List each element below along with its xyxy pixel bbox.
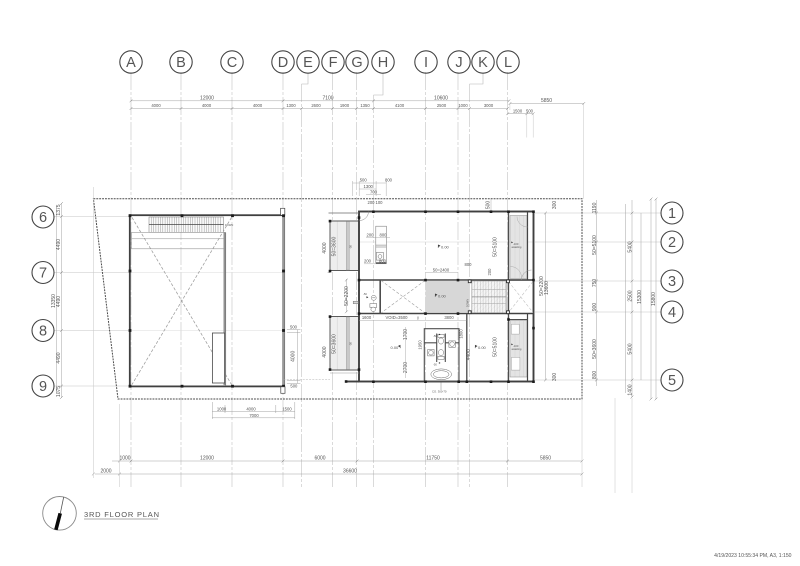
svg-text:50=3600: 50=3600 — [332, 236, 338, 256]
svg-text:200: 200 — [368, 200, 376, 205]
svg-text:-50: -50 — [349, 245, 353, 249]
svg-text:5400: 5400 — [628, 343, 634, 354]
svg-text:50=5100: 50=5100 — [493, 237, 499, 257]
svg-text:4/19/2023 10:55:34 PM, A3, 1:1: 4/19/2023 10:55:34 PM, A3, 1:150 — [714, 553, 791, 559]
svg-text:4490: 4490 — [56, 239, 62, 250]
svg-text:1900: 1900 — [340, 103, 350, 108]
svg-text:800: 800 — [385, 178, 393, 183]
svg-text:7000: 7000 — [249, 413, 259, 418]
svg-text:800: 800 — [380, 232, 388, 237]
svg-text:5400: 5400 — [628, 241, 634, 252]
svg-text:5: 5 — [668, 373, 676, 389]
svg-text:500: 500 — [290, 325, 298, 330]
svg-text:C: C — [227, 55, 237, 71]
svg-text:J: J — [455, 55, 462, 71]
svg-text:50=3600: 50=3600 — [332, 334, 338, 354]
svg-text:5850: 5850 — [541, 98, 552, 104]
svg-text:4490: 4490 — [56, 352, 62, 363]
svg-text:200: 200 — [364, 258, 372, 263]
svg-text:H: H — [378, 55, 388, 71]
svg-text:36600: 36600 — [343, 469, 357, 475]
svg-text:3000: 3000 — [484, 103, 494, 108]
svg-text:0.00: 0.00 — [478, 345, 487, 350]
svg-text:10600: 10600 — [434, 95, 448, 101]
svg-text:6: 6 — [39, 210, 47, 226]
svg-text:A: A — [126, 55, 136, 71]
svg-text:2000: 2000 — [100, 469, 111, 475]
svg-text:4: 4 — [668, 305, 676, 321]
svg-text:1600: 1600 — [362, 315, 372, 320]
svg-text:4000: 4000 — [202, 103, 212, 108]
svg-text:L: L — [504, 55, 512, 71]
svg-text:7: 7 — [39, 266, 47, 282]
svg-text:800: 800 — [465, 262, 473, 267]
svg-text:2500: 2500 — [437, 103, 447, 108]
svg-text:awaiting: awaiting — [512, 347, 522, 351]
svg-text:4000: 4000 — [291, 351, 297, 362]
svg-text:11750: 11750 — [426, 456, 440, 462]
svg-text:1: 1 — [668, 206, 676, 222]
svg-text:1700: 1700 — [403, 329, 409, 340]
svg-text:4000: 4000 — [246, 406, 256, 411]
svg-text:0.00: 0.00 — [438, 294, 447, 299]
svg-text:15800: 15800 — [651, 292, 657, 306]
svg-text:1950: 1950 — [418, 340, 423, 350]
svg-text:1000: 1000 — [217, 406, 227, 411]
svg-text:D: D — [278, 55, 288, 71]
svg-text:4000: 4000 — [322, 346, 328, 357]
svg-text:300: 300 — [552, 373, 558, 382]
svg-text:1375: 1375 — [56, 204, 62, 215]
svg-text:500: 500 — [486, 201, 492, 210]
svg-text:-50: -50 — [349, 342, 353, 346]
svg-text:-50: -50 — [433, 334, 437, 338]
svg-text:-50: -50 — [433, 362, 437, 366]
svg-text:750: 750 — [592, 279, 598, 288]
svg-text:B: B — [176, 55, 186, 71]
svg-text:200: 200 — [367, 232, 375, 237]
svg-text:13350: 13350 — [51, 294, 57, 308]
svg-text:2500: 2500 — [628, 290, 634, 301]
svg-text:3: 3 — [668, 274, 676, 290]
svg-text:1075: 1075 — [56, 386, 62, 397]
svg-text:-50: -50 — [363, 292, 367, 296]
svg-text:1350: 1350 — [360, 103, 370, 108]
svg-text:0.00: 0.00 — [391, 345, 400, 350]
svg-text:4000: 4000 — [253, 103, 263, 108]
svg-text:4000: 4000 — [322, 242, 328, 253]
svg-text:700: 700 — [370, 189, 378, 194]
svg-text:4400: 4400 — [466, 349, 472, 360]
svg-text:100: 100 — [376, 200, 384, 205]
svg-text:50=2400: 50=2400 — [433, 268, 450, 273]
svg-text:1500: 1500 — [282, 406, 292, 411]
svg-text:1300: 1300 — [364, 184, 374, 189]
svg-text:1000: 1000 — [458, 103, 468, 108]
svg-text:2600: 2600 — [311, 103, 321, 108]
svg-text:E: E — [303, 55, 313, 71]
svg-text:0.00: 0.00 — [441, 245, 450, 250]
svg-text:200: 200 — [487, 268, 492, 276]
svg-text:1800: 1800 — [459, 329, 464, 339]
svg-text:800: 800 — [592, 371, 598, 380]
svg-text:1400: 1400 — [628, 384, 634, 395]
svg-text:1300: 1300 — [286, 103, 296, 108]
svg-text:K: K — [478, 55, 488, 71]
svg-text:1190: 1190 — [592, 202, 598, 213]
svg-text:50=5100: 50=5100 — [592, 235, 598, 255]
svg-text:G: G — [351, 55, 362, 71]
svg-text:500: 500 — [526, 109, 534, 114]
svg-text:8: 8 — [39, 324, 47, 340]
svg-text:900: 900 — [592, 303, 598, 312]
svg-text:6000: 6000 — [314, 456, 325, 462]
svg-text:I: I — [424, 55, 428, 71]
svg-text:5850: 5850 — [540, 456, 551, 462]
svg-text:DOWN: DOWN — [465, 299, 469, 307]
svg-text:1500: 1500 — [513, 109, 523, 114]
svg-text:300: 300 — [552, 201, 558, 210]
svg-text:800: 800 — [379, 258, 387, 263]
svg-text:2700: 2700 — [403, 362, 409, 373]
svg-text:4100: 4100 — [395, 103, 405, 108]
svg-text:500: 500 — [290, 384, 298, 389]
svg-text:50=5100: 50=5100 — [493, 337, 499, 357]
svg-text:7100: 7100 — [322, 95, 333, 101]
svg-text:CO. 300-70: CO. 300-70 — [432, 390, 447, 394]
svg-text:13600: 13600 — [544, 281, 550, 295]
svg-text:50=3600: 50=3600 — [592, 339, 598, 359]
svg-text:12000: 12000 — [200, 456, 214, 462]
svg-text:1000: 1000 — [119, 456, 130, 462]
svg-text:3RD FLOOR PLAN: 3RD FLOOR PLAN — [84, 510, 160, 519]
svg-text:3800: 3800 — [444, 315, 454, 320]
svg-text:2: 2 — [668, 235, 676, 251]
svg-text:F: F — [329, 55, 338, 71]
svg-text:12000: 12000 — [200, 95, 214, 101]
svg-text:awaiting: awaiting — [512, 245, 522, 249]
svg-text:50=2200: 50=2200 — [344, 286, 350, 306]
svg-text:500: 500 — [360, 178, 368, 183]
svg-text:15300: 15300 — [637, 290, 643, 304]
svg-text:9: 9 — [39, 379, 47, 395]
svg-text:VOID=3500: VOID=3500 — [386, 315, 409, 320]
svg-text:4000: 4000 — [151, 103, 161, 108]
svg-text:DOWN: DOWN — [225, 223, 233, 227]
